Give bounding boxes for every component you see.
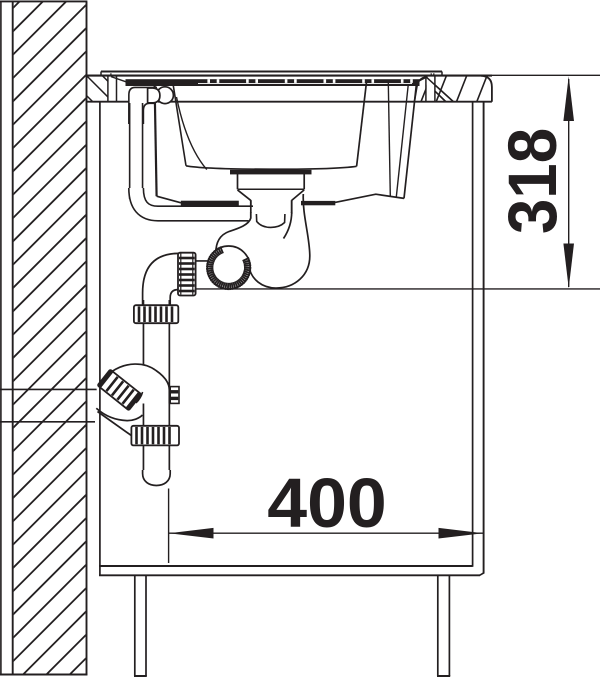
svg-text:400: 400 [267,464,387,542]
svg-text:318: 318 [494,128,571,234]
